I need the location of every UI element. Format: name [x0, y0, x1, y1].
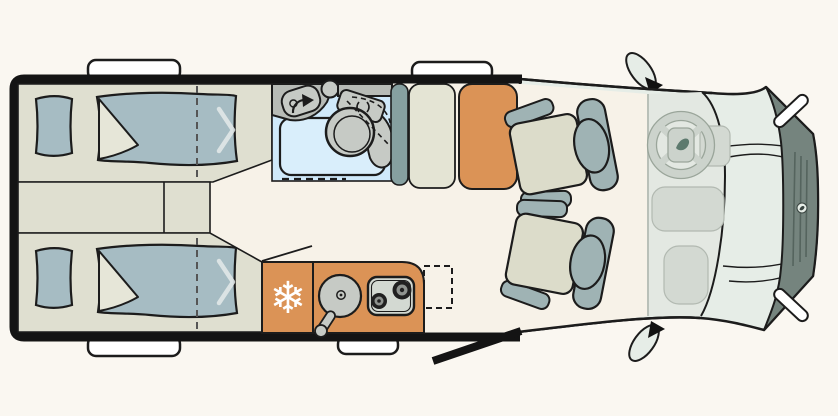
burner-small [371, 293, 387, 309]
stove [368, 277, 414, 315]
dash-center [652, 187, 724, 231]
partition-panel-teal [391, 84, 408, 185]
bathroom-faucet [322, 81, 339, 98]
kitchen: ❄ [262, 262, 452, 337]
kitchen-faucet-dot [340, 294, 343, 297]
fridge-snowflake-icon: ❄ [270, 273, 307, 324]
pillow [36, 96, 72, 156]
bed-step-cabinet [18, 182, 210, 233]
motorhome-floorplan: ❄ [0, 0, 838, 416]
dash-glovebox [664, 246, 708, 304]
wardrobe [459, 84, 517, 189]
sink-handle-knob [315, 325, 327, 337]
pillow [36, 248, 72, 308]
burner-large [393, 281, 412, 300]
toilet-bowl [326, 108, 374, 156]
front-logo-icon [797, 203, 807, 213]
bathroom [272, 81, 393, 182]
cabinet-panel [409, 84, 455, 188]
